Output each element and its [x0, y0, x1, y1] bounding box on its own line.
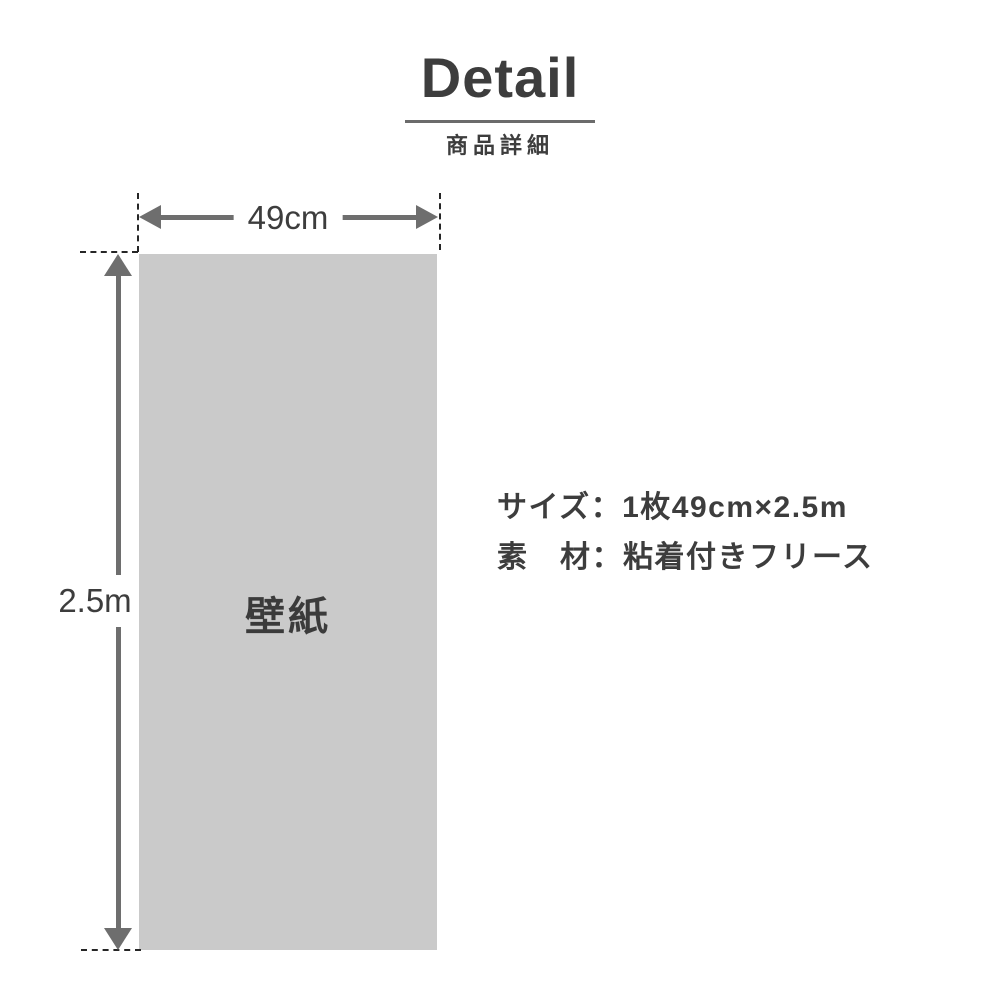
dashed-extension-top — [80, 251, 138, 253]
dashed-extension-right — [439, 193, 441, 250]
width-dimension-label: 49cm — [234, 198, 343, 238]
page-subtitle: 商品詳細 — [0, 134, 1000, 158]
page-title: Detail — [0, 48, 1000, 108]
arrow-right-icon — [416, 205, 438, 229]
arrow-up-icon — [104, 254, 132, 276]
height-dimension-label: 2.5m — [54, 575, 135, 627]
title-underline — [405, 120, 595, 123]
product-detail-panel: Detail 商品詳細 壁紙 49cm 2.5m サイズ：1枚49cm×2.5m… — [0, 0, 1000, 1000]
wallpaper-sheet-label: 壁紙 — [245, 562, 331, 642]
arrow-left-icon — [139, 205, 161, 229]
spec-list: サイズ：1枚49cm×2.5m 素 材：粘着付きフリース — [497, 483, 874, 583]
arrow-down-icon — [104, 928, 132, 950]
spec-size: サイズ：1枚49cm×2.5m — [497, 483, 874, 533]
wallpaper-sheet: 壁紙 — [139, 254, 437, 950]
spec-material: 素 材：粘着付きフリース — [497, 533, 874, 583]
